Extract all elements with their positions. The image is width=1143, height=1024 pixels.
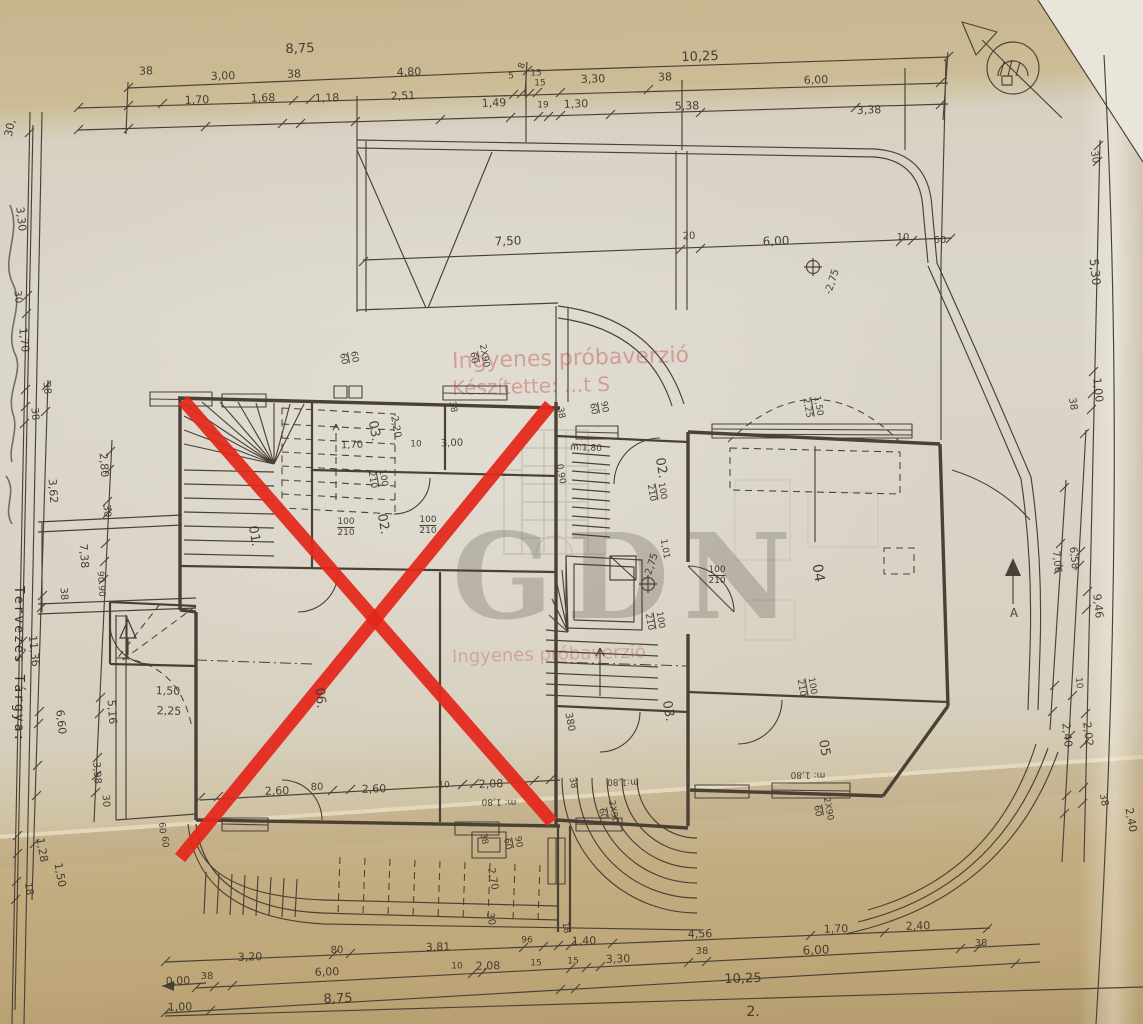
north-arrow-icon <box>962 22 1062 118</box>
right-unit-walls <box>556 432 948 828</box>
main-stair <box>546 444 658 700</box>
title-block-side-label: Tervezés Tárgya: <box>11 586 26 743</box>
handwritten-signature <box>6 205 18 524</box>
dashed-lines <box>116 399 914 921</box>
door-arcs <box>110 438 782 820</box>
right-unit-partitions <box>556 436 948 932</box>
section-marker-icons <box>120 558 1021 655</box>
datum-arrow <box>162 981 206 991</box>
red-x-crossout <box>180 400 552 858</box>
garage-walls <box>357 140 1041 710</box>
scanned-floorplan-photo: GDN Ingyenes próbaverzió Készítette: ...… <box>0 0 1143 1024</box>
floorplan-linework <box>0 0 1143 1024</box>
level-marker-icons <box>639 258 822 593</box>
extension-lines <box>126 52 948 262</box>
bleed-through <box>735 480 878 640</box>
